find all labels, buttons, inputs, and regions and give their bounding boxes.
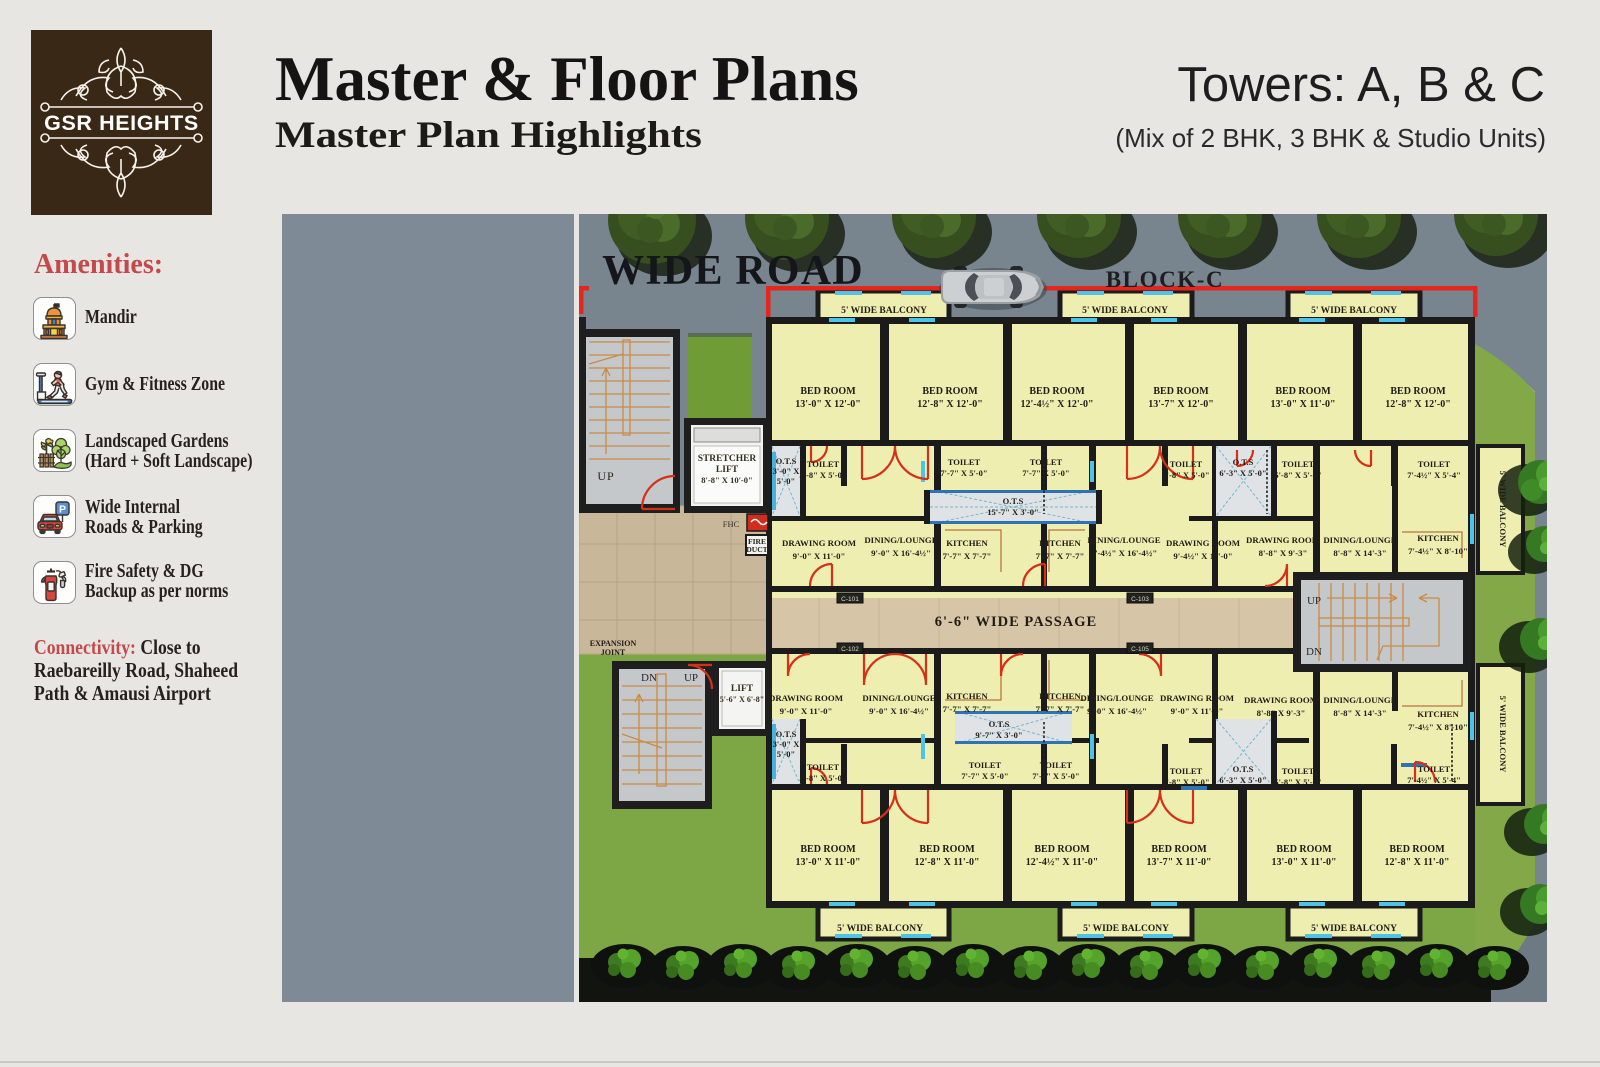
svg-text:BLOCK-C: BLOCK-C [1106,267,1225,292]
svg-text:5' WIDE BALCONY: 5' WIDE BALCONY [837,924,923,934]
svg-text:7'-4½" X 5'-4": 7'-4½" X 5'-4" [1407,470,1461,480]
svg-text:5' WIDE BALCONY: 5' WIDE BALCONY [1311,924,1397,934]
svg-text:KITCHEN: KITCHEN [1039,691,1081,701]
svg-text:7'-7" X 5'-0": 7'-7" X 5'-0" [961,771,1008,781]
svg-text:7'-7" X 5'-0": 7'-7" X 5'-0" [1022,468,1069,478]
svg-text:BED ROOM: BED ROOM [1151,844,1207,855]
svg-text:O.T.S: O.T.S [1233,764,1254,774]
svg-text:9'-0" X 11'-0": 9'-0" X 11'-0" [1171,706,1224,716]
svg-text:DINING/LOUNGE: DINING/LOUNGE [862,693,935,703]
svg-text:BED ROOM: BED ROOM [800,844,856,855]
svg-text:LIFT: LIFT [731,684,754,694]
svg-text:TOILET: TOILET [1418,764,1451,774]
svg-text:TOILET: TOILET [1040,760,1073,770]
svg-text:8'-8" X 9'-3": 8'-8" X 9'-3" [1259,548,1308,558]
svg-text:9'-0" X 16'-4½": 9'-0" X 16'-4½" [871,548,931,558]
svg-text:DRAWING ROOM: DRAWING ROOM [1246,535,1321,545]
svg-text:UP: UP [684,672,698,684]
svg-text:3'-0" X: 3'-0" X [773,739,801,749]
svg-text:BED ROOM: BED ROOM [1390,386,1446,397]
svg-text:BED ROOM: BED ROOM [1276,844,1332,855]
svg-text:JOINT: JOINT [601,648,626,657]
svg-text:9'-0" X 16'-4½": 9'-0" X 16'-4½" [1087,706,1147,716]
svg-text:DINING/LOUNGE: DINING/LOUNGE [1323,695,1396,705]
svg-text:7'-4½" X 8'-10": 7'-4½" X 8'-10" [1408,546,1468,556]
svg-text:12'-8" X 12'-0": 12'-8" X 12'-0" [917,399,983,410]
svg-text:3'-0" X: 3'-0" X [773,466,801,476]
svg-text:7'-4½" X 5'-4": 7'-4½" X 5'-4" [1407,775,1461,785]
svg-text:UP: UP [597,469,614,483]
svg-text:KITCHEN: KITCHEN [1417,533,1459,543]
svg-text:KITCHEN: KITCHEN [946,691,988,701]
svg-text:BED ROOM: BED ROOM [1153,386,1209,397]
svg-text:BED ROOM: BED ROOM [919,844,975,855]
svg-text:DRAWING ROOM: DRAWING ROOM [782,538,857,548]
svg-text:DRAWING ROOM: DRAWING ROOM [769,693,844,703]
svg-text:8'-4½" X 16'-4½": 8'-4½" X 16'-4½" [1091,548,1157,558]
svg-text:12'-8" X 12'-0": 12'-8" X 12'-0" [1385,399,1451,410]
svg-text:9'-0" X 11'-0": 9'-0" X 11'-0" [793,551,846,561]
svg-text:KITCHEN: KITCHEN [1039,538,1081,548]
svg-text:BED ROOM: BED ROOM [1389,844,1445,855]
svg-text:EXPANSION: EXPANSION [590,639,637,648]
svg-text:TOILET: TOILET [807,459,840,469]
svg-text:O.T.S: O.T.S [1003,496,1024,506]
svg-text:5' WIDE BALCONY: 5' WIDE BALCONY [1498,696,1508,773]
svg-text:13'-0" X 11'-0": 13'-0" X 11'-0" [796,857,861,868]
svg-text:5' WIDE BALCONY: 5' WIDE BALCONY [841,306,927,316]
svg-text:12'-4½" X 12'-0": 12'-4½" X 12'-0" [1020,399,1093,410]
svg-text:TOILET: TOILET [1282,766,1315,776]
svg-text:5' WIDE BALCONY: 5' WIDE BALCONY [1083,924,1169,934]
svg-text:5' WIDE BALCONY: 5' WIDE BALCONY [1082,306,1168,316]
svg-text:DN: DN [1306,646,1322,658]
svg-text:O.T.S: O.T.S [776,729,797,739]
svg-text:5'-0": 5'-0" [777,476,795,486]
svg-text:TOILET: TOILET [1030,457,1063,467]
svg-text:12'-8" X 11'-0": 12'-8" X 11'-0" [1385,857,1450,868]
svg-text:TOILET: TOILET [1170,766,1203,776]
svg-text:C-101: C-101 [841,596,859,603]
svg-text:6'-3" X 5'-0": 6'-3" X 5'-0" [1219,468,1266,478]
svg-text:BED ROOM: BED ROOM [1275,386,1331,397]
svg-text:C-105: C-105 [1131,646,1149,653]
svg-text:7'-7" X 5'-0": 7'-7" X 5'-0" [1032,771,1079,781]
svg-text:9'-4½" X 11'-0": 9'-4½" X 11'-0" [1173,551,1232,561]
svg-text:6'-3" X 5'-0": 6'-3" X 5'-0" [1219,775,1266,785]
svg-text:DRAWING ROOM: DRAWING ROOM [1166,538,1241,548]
svg-text:7'-7" X 5'-0": 7'-7" X 5'-0" [940,468,987,478]
svg-text:5' WIDE BALCONY: 5' WIDE BALCONY [1498,471,1508,548]
svg-text:KITCHEN: KITCHEN [1417,709,1459,719]
svg-text:8'-8" X 14'-3": 8'-8" X 14'-3" [1333,708,1386,718]
svg-text:7'-7" X 7'-7": 7'-7" X 7'-7" [1036,704,1085,714]
svg-text:12'-8" X 11'-0": 12'-8" X 11'-0" [915,857,980,868]
svg-text:DINING/LOUNGE: DINING/LOUNGE [1087,535,1160,545]
svg-text:TOILET: TOILET [1170,459,1203,469]
svg-text:O.T.S: O.T.S [1233,457,1254,467]
svg-text:C-102: C-102 [841,646,859,653]
svg-text:FHC: FHC [723,519,740,529]
svg-text:7'-7" X 7'-7": 7'-7" X 7'-7" [943,551,992,561]
svg-text:8'-8" X 14'-3": 8'-8" X 14'-3" [1333,548,1386,558]
svg-text:5'-8" X 5'-0": 5'-8" X 5'-0" [1162,470,1209,480]
svg-text:13'-7" X 11'-0": 13'-7" X 11'-0" [1147,857,1212,868]
svg-text:13'-0" X 12'-0": 13'-0" X 12'-0" [795,399,861,410]
svg-text:BED ROOM: BED ROOM [1034,844,1090,855]
svg-text:7'-7" X 7'-7": 7'-7" X 7'-7" [943,704,992,714]
svg-text:DRAWING ROOM: DRAWING ROOM [1244,695,1319,705]
svg-text:DRAWING ROOM: DRAWING ROOM [1160,693,1235,703]
svg-text:5'-8" X 5'-0": 5'-8" X 5'-0" [1274,777,1321,787]
svg-text:13'-0" X 11'-0": 13'-0" X 11'-0" [1272,857,1337,868]
svg-text:7'-4½" X 8'-10": 7'-4½" X 8'-10" [1408,722,1468,732]
svg-text:DINING/LOUNGE: DINING/LOUNGE [864,535,937,545]
svg-text:DINING/LOUNGE: DINING/LOUNGE [1323,535,1396,545]
svg-text:BED ROOM: BED ROOM [1029,386,1085,397]
svg-text:5' WIDE BALCONY: 5' WIDE BALCONY [1311,306,1397,316]
svg-text:TOILET: TOILET [807,762,840,772]
svg-text:12'-4½" X 11'-0": 12'-4½" X 11'-0" [1026,857,1099,868]
svg-text:7'-7" X 7'-7": 7'-7" X 7'-7" [1036,551,1085,561]
svg-text:LIFT: LIFT [716,465,739,475]
svg-text:GSR HEIGHTS: GSR HEIGHTS [44,111,199,135]
svg-text:15'-7" X 3'-0": 15'-7" X 3'-0" [987,507,1038,517]
svg-text:WIDE ROAD: WIDE ROAD [602,248,864,294]
svg-text:C-103: C-103 [1131,596,1149,603]
svg-text:DINING/LOUNGE: DINING/LOUNGE [1080,693,1153,703]
svg-text:5'-0": 5'-0" [777,749,795,759]
svg-text:DUCT: DUCT [746,545,767,554]
svg-text:TOILET: TOILET [969,760,1002,770]
svg-text:BED ROOM: BED ROOM [922,386,978,397]
svg-text:9'-0" X 11'-0": 9'-0" X 11'-0" [780,706,833,716]
svg-text:O.T.S: O.T.S [989,719,1010,729]
svg-text:P: P [59,503,66,515]
svg-text:13'-0" X 11'-0": 13'-0" X 11'-0" [1271,399,1336,410]
svg-text:TOILET: TOILET [1282,459,1315,469]
svg-text:5'-8" X 5'-0": 5'-8" X 5'-0" [799,470,846,480]
svg-text:O.T.S: O.T.S [776,456,797,466]
svg-text:8'-8" X 9'-3": 8'-8" X 9'-3" [1257,708,1306,718]
svg-text:9'-0" X 16'-4½": 9'-0" X 16'-4½" [869,706,929,716]
svg-text:STRETCHER: STRETCHER [698,454,757,464]
svg-text:TOILET: TOILET [948,457,981,467]
svg-text:UP: UP [1307,595,1321,607]
svg-text:5'-8" X 5'-0": 5'-8" X 5'-0" [1162,777,1209,787]
svg-text:6'-6" WIDE PASSAGE: 6'-6" WIDE PASSAGE [935,614,1097,630]
svg-text:DN: DN [641,672,657,684]
svg-text:TOILET: TOILET [1418,459,1451,469]
svg-text:5'-8" X 5'-0": 5'-8" X 5'-0" [799,773,846,783]
svg-text:5'-8" X 5'-0": 5'-8" X 5'-0" [1274,470,1321,480]
svg-text:13'-7" X 12'-0": 13'-7" X 12'-0" [1148,399,1214,410]
svg-text:8'-8" X 10'-0": 8'-8" X 10'-0" [701,475,752,485]
svg-text:KITCHEN: KITCHEN [946,538,988,548]
svg-text:9'-7" X 3'-0": 9'-7" X 3'-0" [975,730,1022,740]
svg-text:5'-6" X 6'-8": 5'-6" X 6'-8" [720,695,764,704]
svg-text:BED ROOM: BED ROOM [800,386,856,397]
